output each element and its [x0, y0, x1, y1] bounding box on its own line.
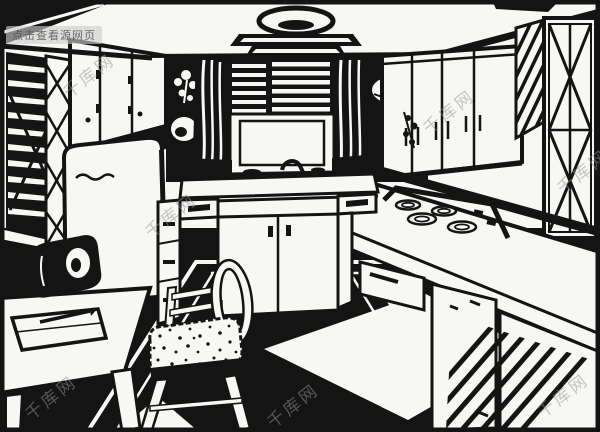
telephone: [29, 235, 101, 298]
corner-lattice-cabinet: [544, 18, 596, 238]
kitchen-line-art: [0, 0, 600, 432]
right-upper-cabinets: [382, 46, 522, 178]
kitchen-illustration: 点击查看源网页 千库网 千库网 千库网 千库网 千库网 千库网 千库网: [0, 0, 600, 432]
kettle: [171, 117, 197, 141]
